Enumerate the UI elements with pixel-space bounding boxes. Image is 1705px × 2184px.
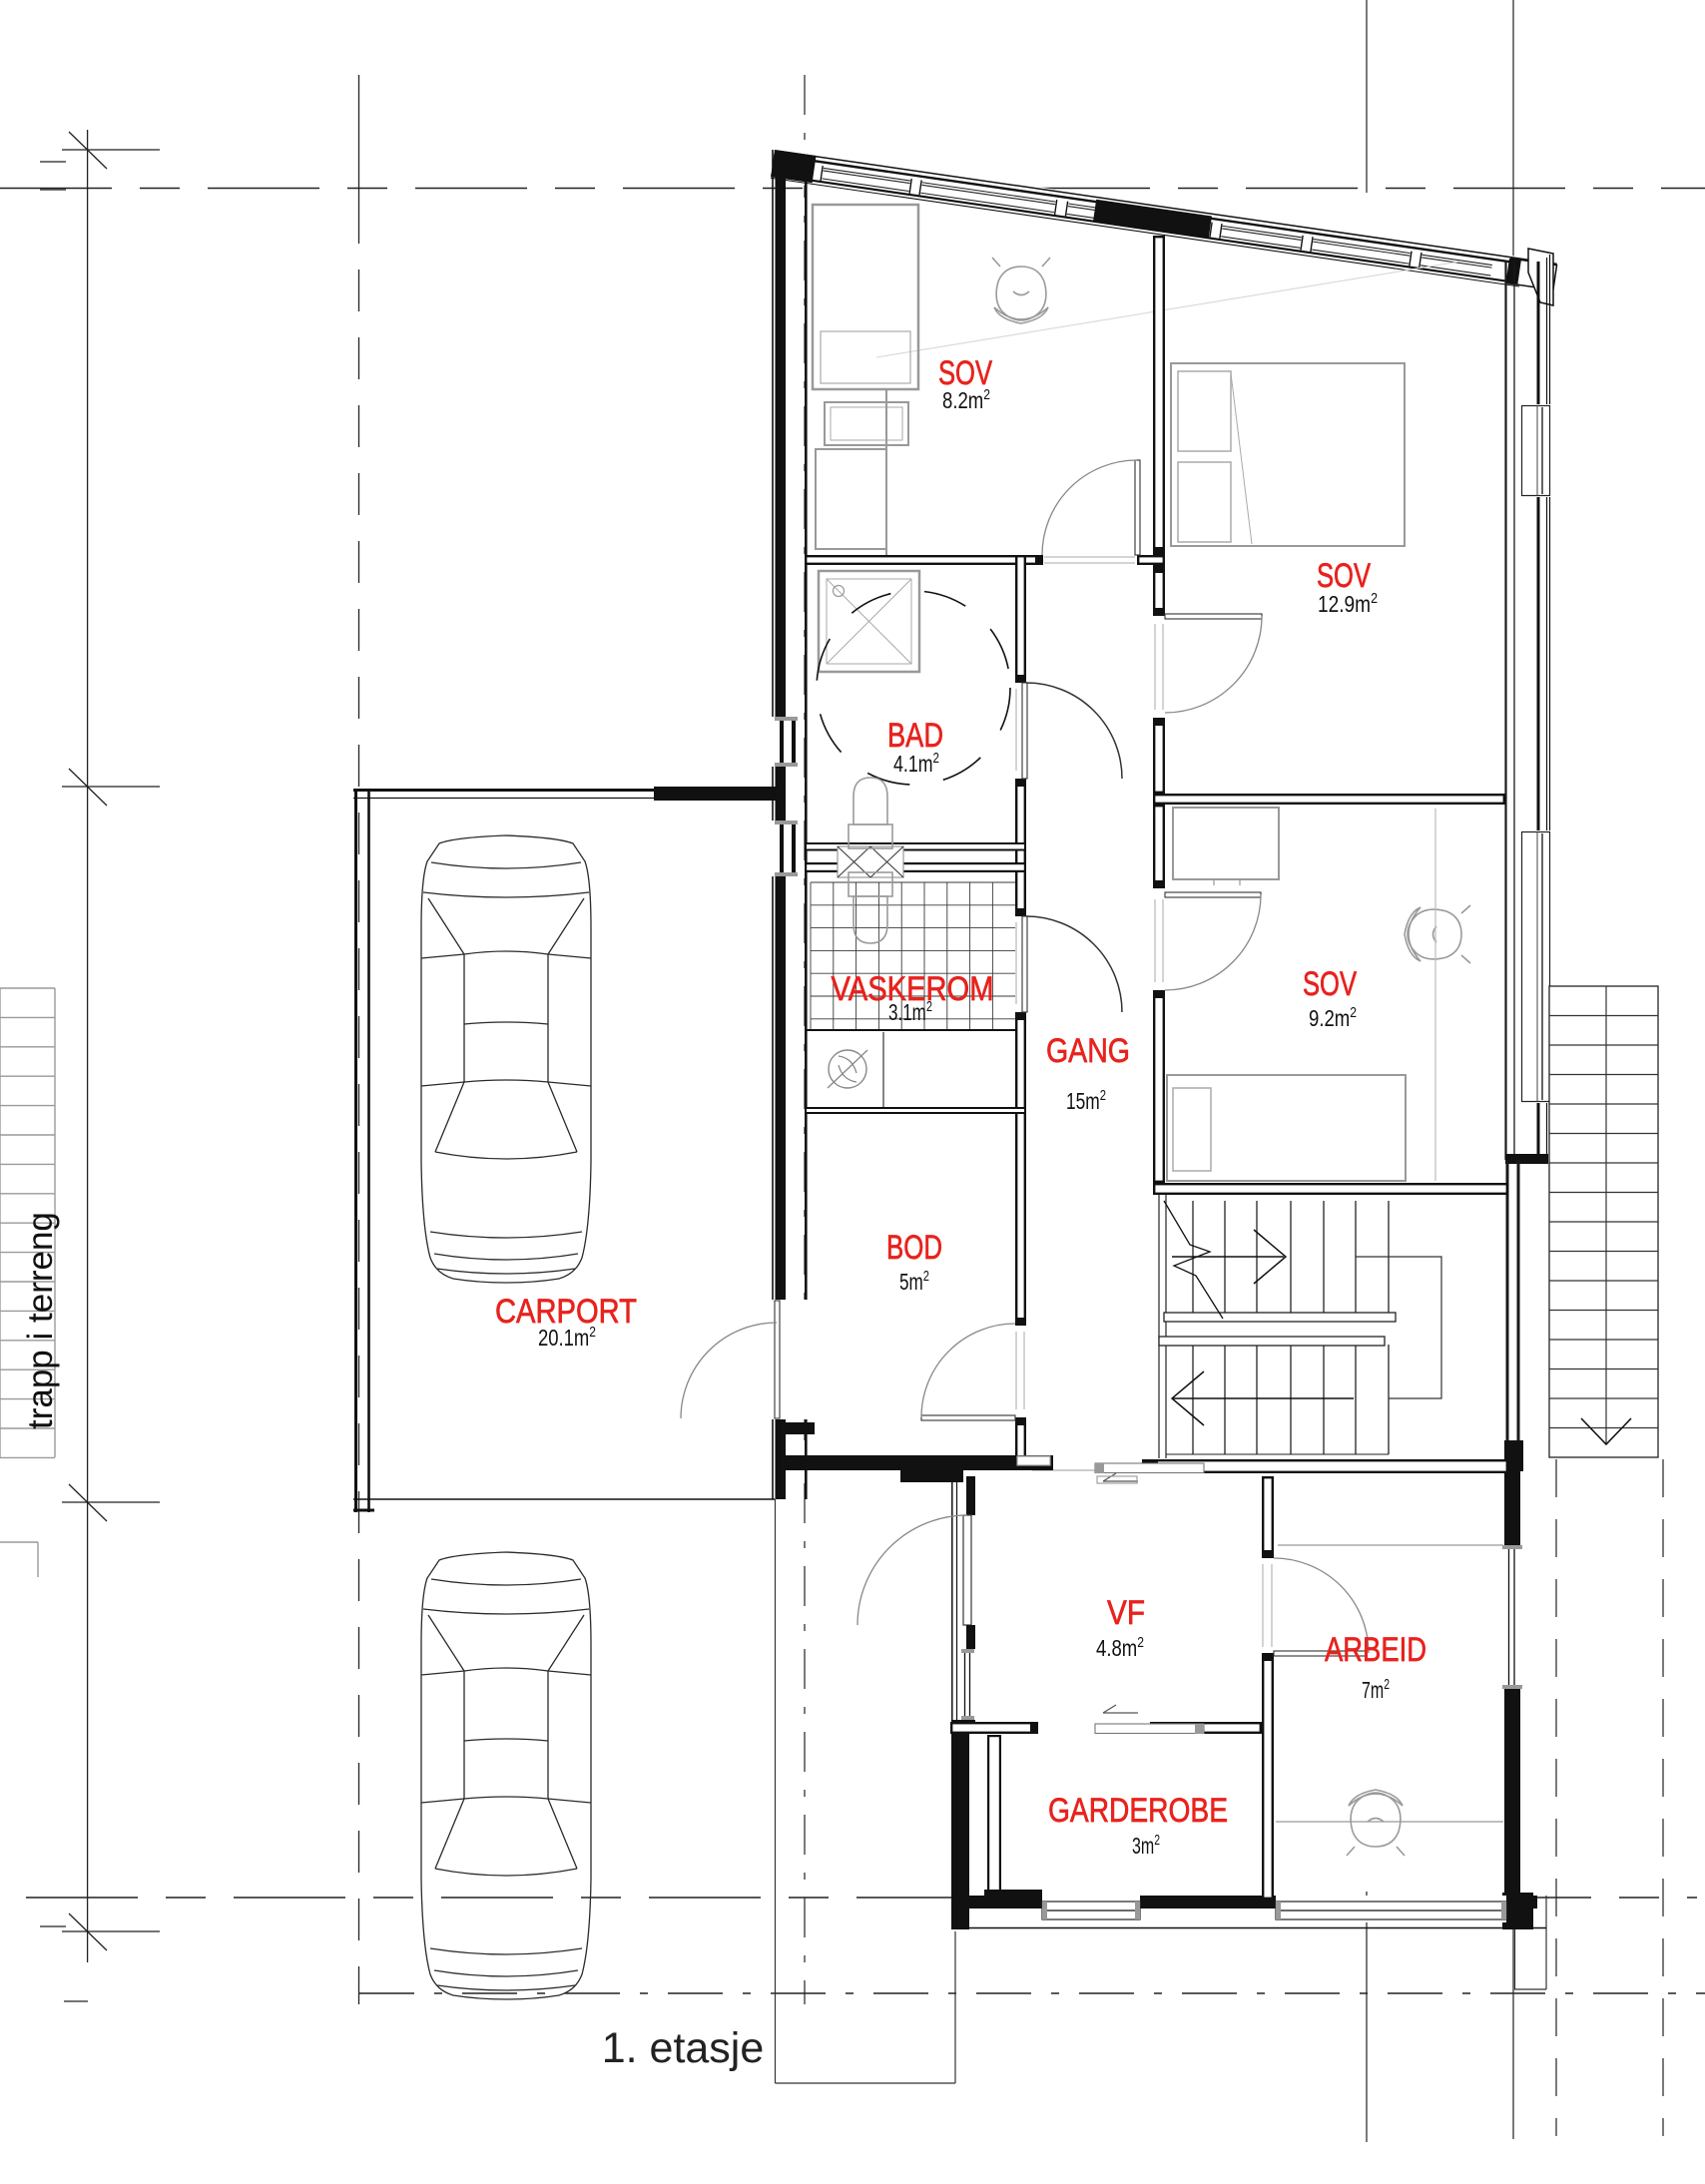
svg-text:12.9m2: 12.9m2 bbox=[1318, 590, 1378, 617]
svg-text:1. etasje: 1. etasje bbox=[602, 2024, 765, 2072]
svg-text:3m2: 3m2 bbox=[1132, 1832, 1160, 1859]
svg-text:trapp i terreng: trapp i terreng bbox=[21, 1212, 60, 1429]
svg-text:BOD: BOD bbox=[886, 1229, 942, 1267]
svg-text:ARBEID: ARBEID bbox=[1325, 1631, 1426, 1669]
svg-text:15m2: 15m2 bbox=[1066, 1087, 1106, 1114]
svg-text:VF: VF bbox=[1107, 1594, 1145, 1632]
svg-text:8.2m2: 8.2m2 bbox=[942, 386, 990, 413]
svg-text:3.1m2: 3.1m2 bbox=[888, 998, 932, 1025]
svg-text:7m2: 7m2 bbox=[1362, 1676, 1390, 1703]
svg-text:SOV: SOV bbox=[1303, 965, 1357, 1003]
svg-text:4.1m2: 4.1m2 bbox=[893, 750, 939, 777]
svg-text:4.8m2: 4.8m2 bbox=[1096, 1634, 1144, 1661]
svg-text:SOV: SOV bbox=[1317, 557, 1371, 595]
svg-text:GARDEROBE: GARDEROBE bbox=[1048, 1792, 1228, 1830]
svg-text:9.2m2: 9.2m2 bbox=[1309, 1004, 1357, 1031]
svg-text:20.1m2: 20.1m2 bbox=[538, 1324, 596, 1351]
svg-text:GANG: GANG bbox=[1046, 1032, 1130, 1070]
svg-text:5m2: 5m2 bbox=[899, 1268, 929, 1295]
